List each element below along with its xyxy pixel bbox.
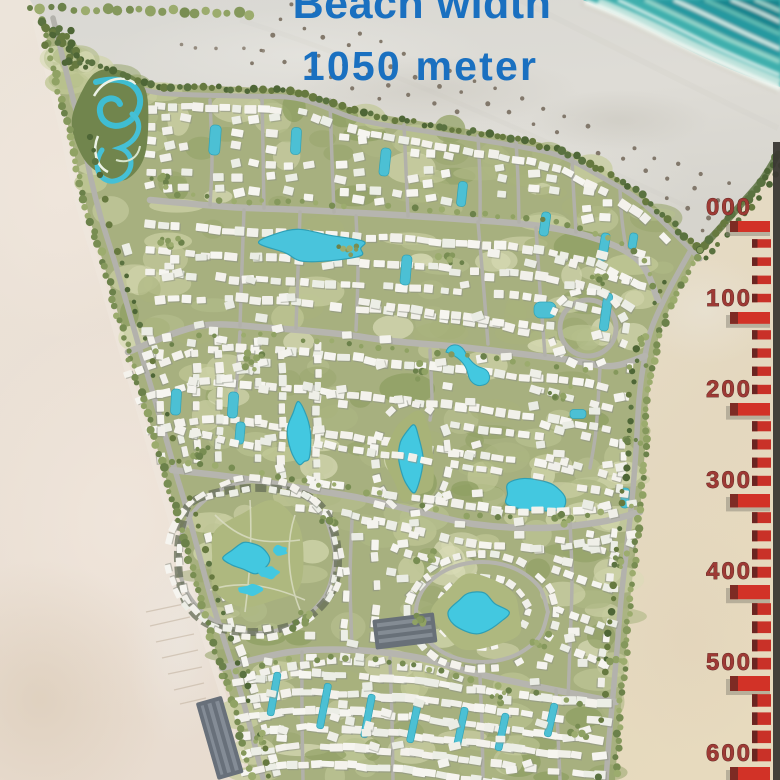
svg-text:Beach width: Beach width xyxy=(293,0,552,28)
svg-text:300: 300 xyxy=(706,467,752,494)
svg-text:400: 400 xyxy=(706,558,752,585)
svg-text:200: 200 xyxy=(706,376,752,403)
svg-text:000: 000 xyxy=(706,194,752,221)
svg-text:500: 500 xyxy=(706,649,752,676)
svg-text:100: 100 xyxy=(706,285,752,312)
svg-text:600: 600 xyxy=(706,740,752,767)
svg-text:1050 meter: 1050 meter xyxy=(302,43,538,89)
